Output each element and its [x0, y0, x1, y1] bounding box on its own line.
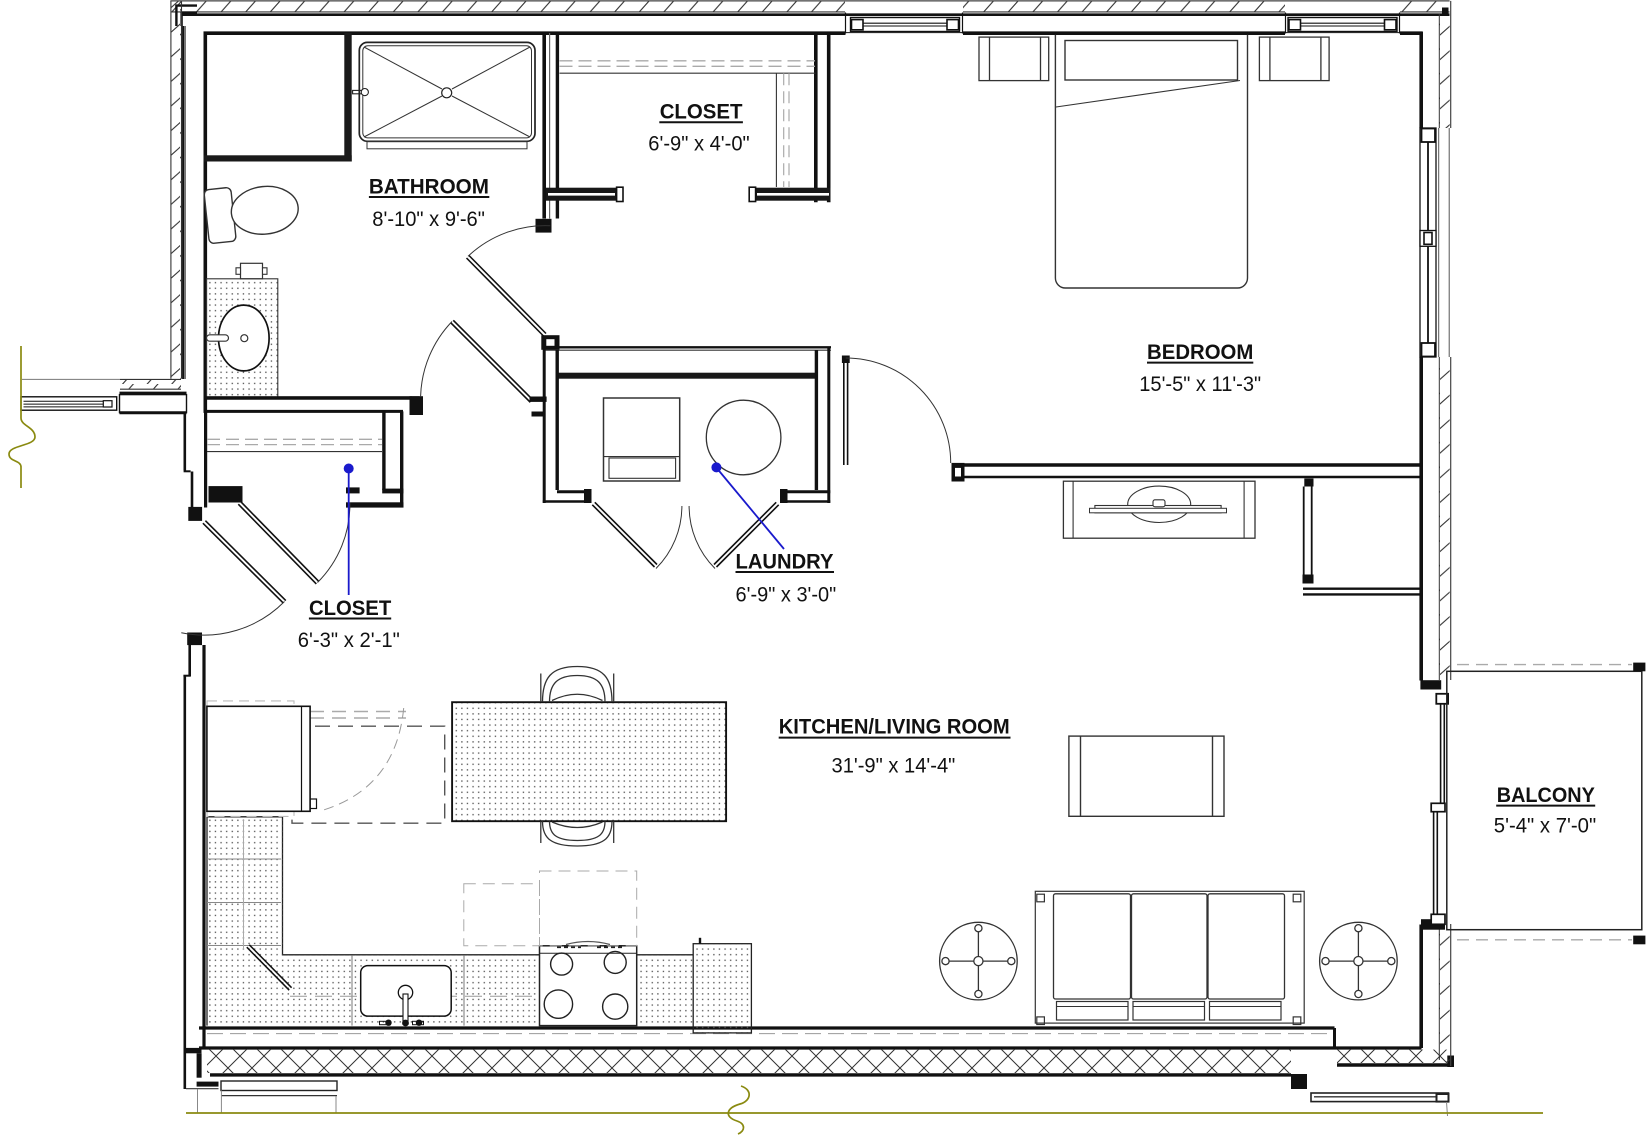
- svg-text:BEDROOM: BEDROOM: [1147, 341, 1253, 364]
- svg-text:8'-10" x 9'-6": 8'-10" x 9'-6": [372, 208, 485, 231]
- svg-text:5'-4" x 7'-0": 5'-4" x 7'-0": [1494, 814, 1596, 837]
- svg-text:31'-9" x 14'-4": 31'-9" x 14'-4": [832, 754, 956, 777]
- svg-text:KITCHEN/LIVING ROOM: KITCHEN/LIVING ROOM: [779, 715, 1010, 738]
- svg-text:6'-3" x 2'-1": 6'-3" x 2'-1": [298, 629, 400, 652]
- svg-text:LAUNDRY: LAUNDRY: [736, 550, 834, 573]
- svg-text:BATHROOM: BATHROOM: [369, 175, 489, 198]
- svg-text:CLOSET: CLOSET: [309, 597, 391, 620]
- svg-text:6'-9" x 4'-0": 6'-9" x 4'-0": [648, 133, 749, 156]
- svg-text:CLOSET: CLOSET: [660, 101, 743, 124]
- svg-text:BALCONY: BALCONY: [1497, 784, 1595, 807]
- svg-text:15'-5" x 11'-3": 15'-5" x 11'-3": [1139, 373, 1261, 396]
- svg-text:6'-9" x 3'-0": 6'-9" x 3'-0": [736, 584, 837, 607]
